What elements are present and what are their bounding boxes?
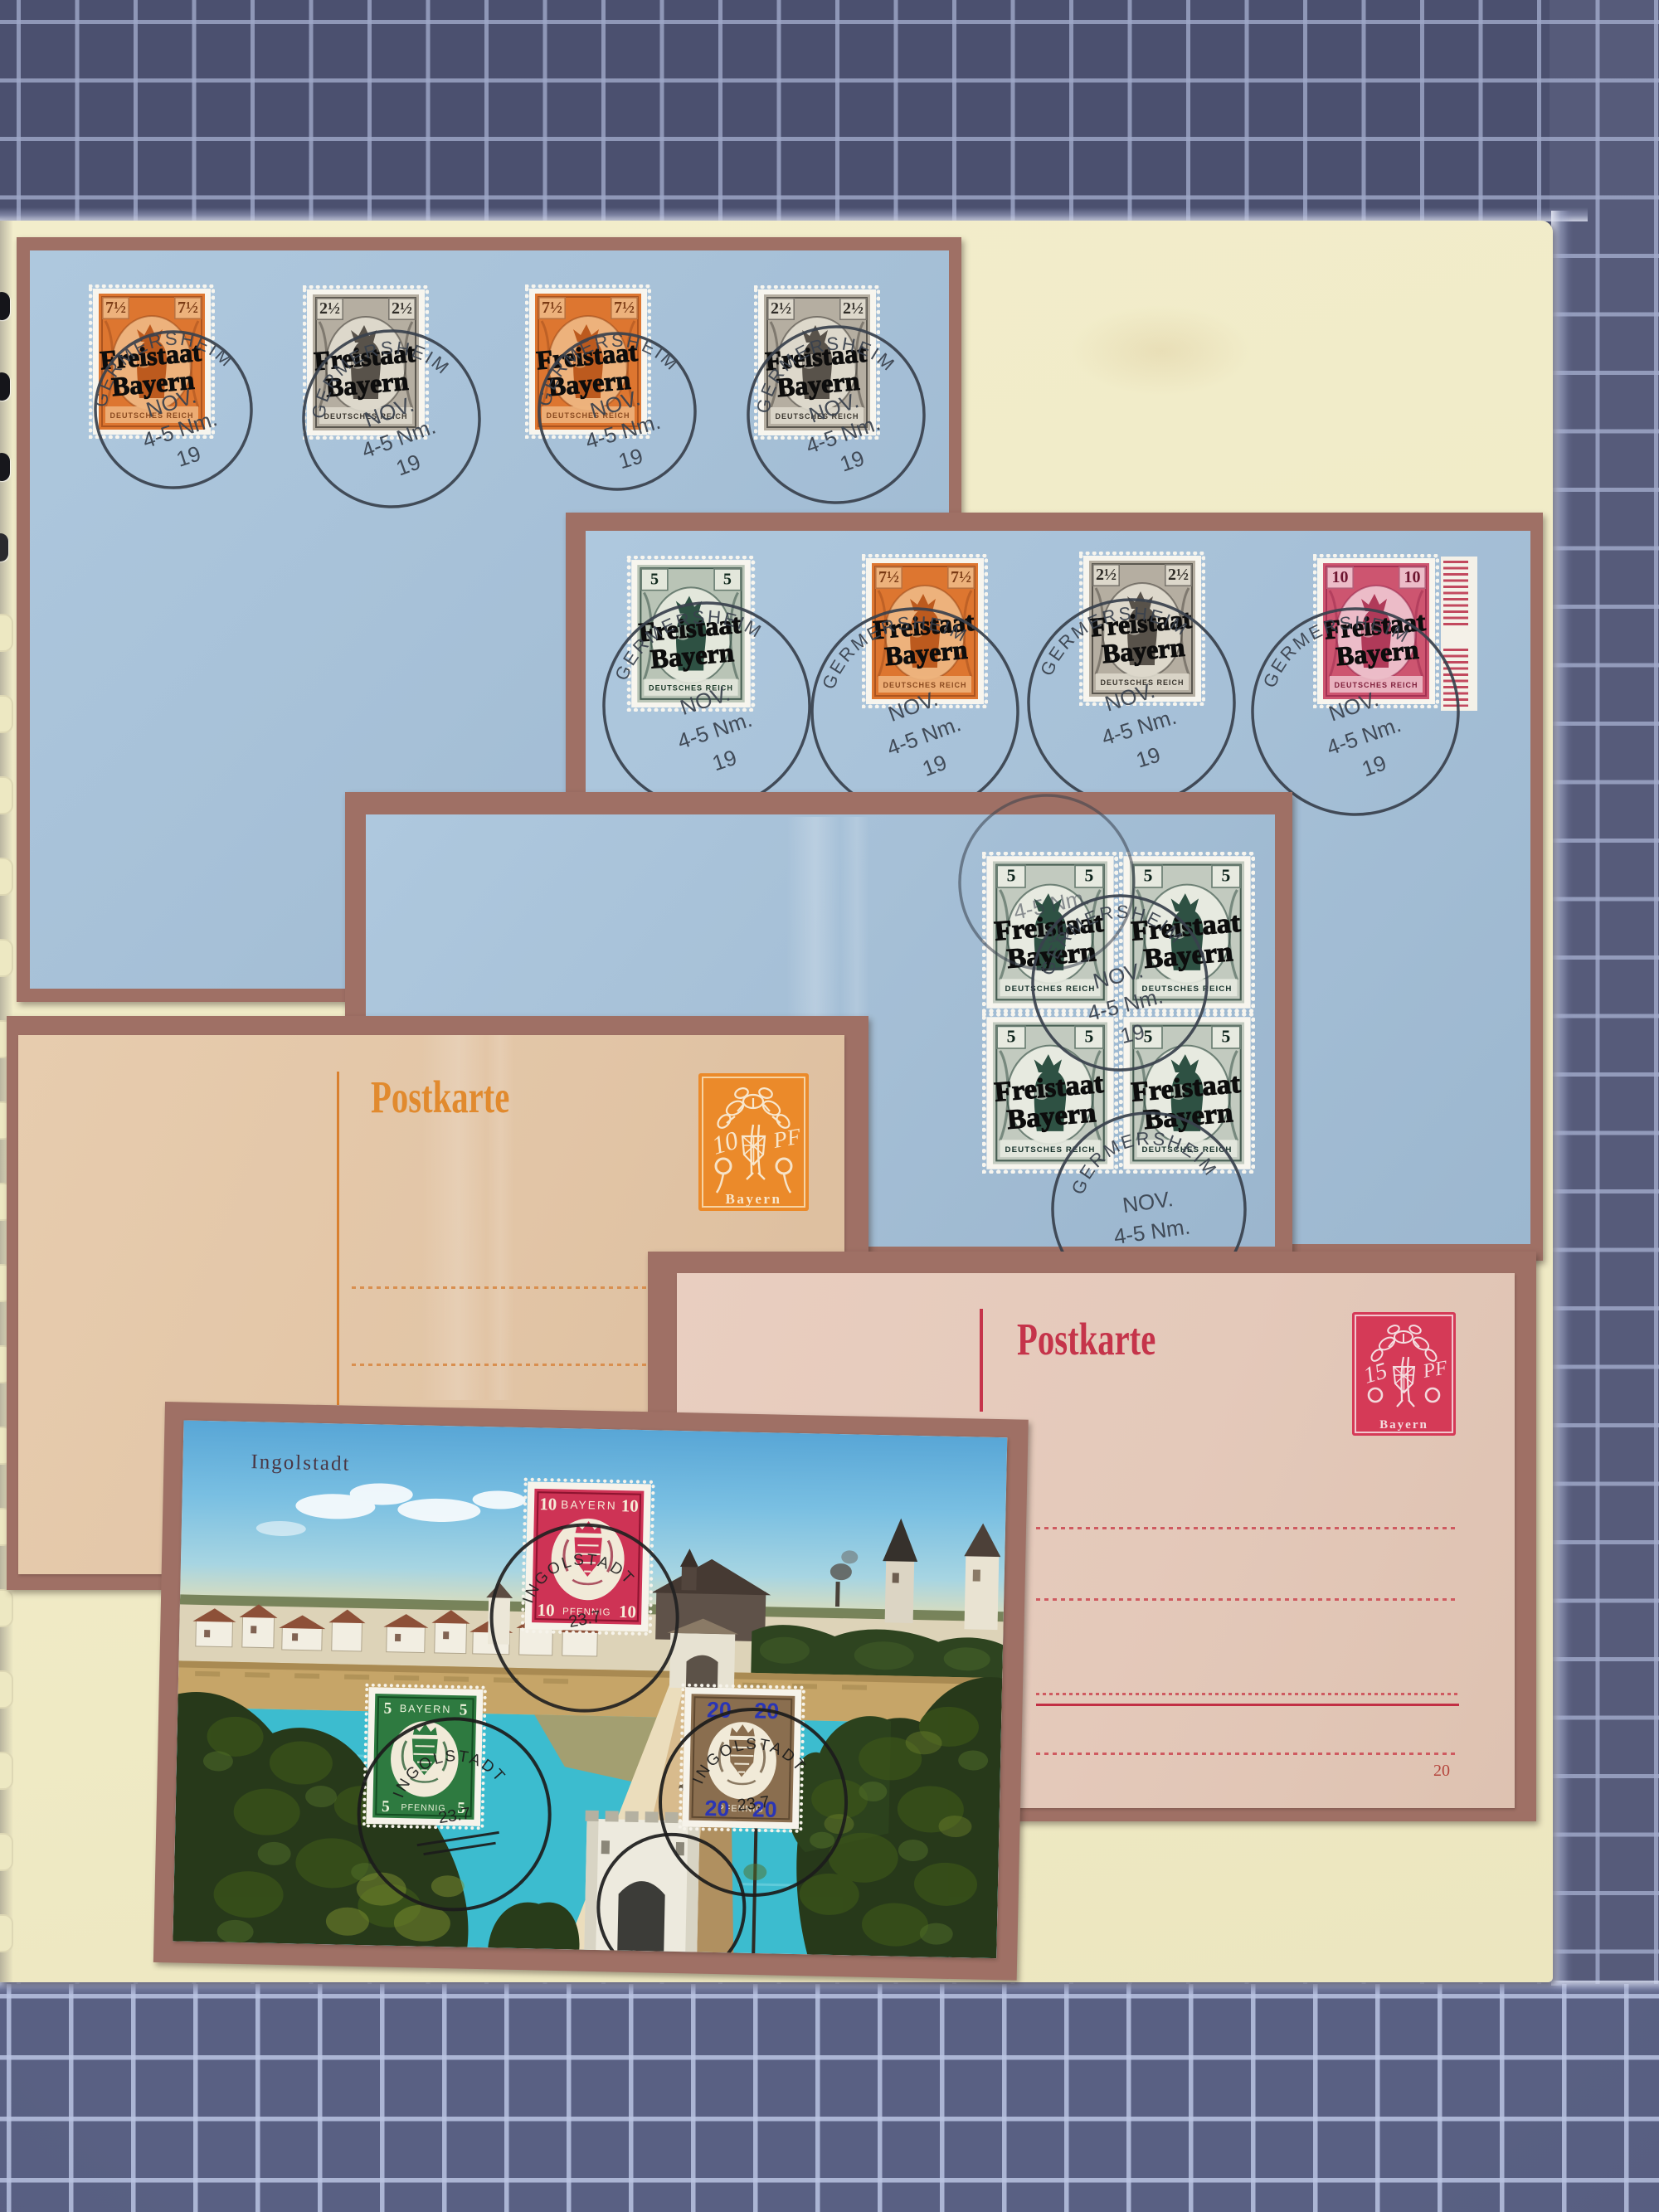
svg-text:5: 5: [382, 1798, 390, 1816]
svg-text:Bayern: Bayern: [726, 1191, 782, 1207]
svg-text:2½: 2½: [771, 299, 791, 318]
svg-text:10: 10: [1332, 568, 1349, 586]
svg-text:2½: 2½: [1168, 566, 1189, 584]
svg-text:7½: 7½: [178, 299, 198, 317]
svg-text:7½: 7½: [878, 568, 899, 586]
svg-text:2½: 2½: [319, 299, 340, 318]
svg-text:5: 5: [383, 1700, 392, 1718]
svg-text:19: 19: [1133, 741, 1163, 772]
svg-text:7½: 7½: [542, 299, 562, 317]
svg-text:Bayern: Bayern: [1379, 1418, 1428, 1432]
svg-text:BAYERN: BAYERN: [561, 1499, 617, 1512]
svg-text:2½: 2½: [1096, 566, 1117, 584]
svg-text:GERMERSHEIM: GERMERSHEIM: [1060, 1118, 1223, 1200]
svg-text:5: 5: [1144, 866, 1153, 886]
svg-text:20: 20: [704, 1796, 729, 1821]
svg-text:5: 5: [460, 1701, 468, 1719]
svg-text:PF: PF: [771, 1124, 803, 1154]
svg-text:7½: 7½: [105, 299, 126, 317]
svg-text:19: 19: [173, 440, 204, 471]
svg-text:7½: 7½: [951, 568, 971, 586]
svg-text:19: 19: [392, 449, 423, 480]
svg-text:10: 10: [537, 1600, 554, 1620]
svg-text:10: 10: [619, 1602, 636, 1621]
svg-text:10: 10: [621, 1495, 639, 1515]
svg-text:NOV.: NOV.: [1121, 1186, 1175, 1218]
svg-text:19: 19: [919, 750, 950, 781]
svg-text:10: 10: [539, 1494, 557, 1514]
svg-text:19: 19: [1359, 750, 1389, 781]
svg-text:5: 5: [1222, 866, 1231, 886]
svg-text:Ingolstadt: Ingolstadt: [251, 1451, 351, 1475]
svg-text:5: 5: [723, 570, 732, 588]
svg-text:5: 5: [1007, 1027, 1016, 1047]
svg-text:19: 19: [837, 445, 868, 477]
svg-text:19: 19: [709, 745, 740, 775]
svg-text:5: 5: [1222, 1027, 1231, 1047]
svg-text:2½: 2½: [843, 299, 864, 318]
svg-text:19: 19: [1118, 1018, 1147, 1048]
svg-text:7½: 7½: [614, 299, 635, 317]
svg-text:BAYERN: BAYERN: [400, 1703, 452, 1715]
svg-text:23.7: 23.7: [737, 1793, 771, 1815]
svg-text:5: 5: [650, 570, 659, 588]
svg-text:4-5 Nm.: 4-5 Nm.: [1112, 1213, 1192, 1249]
svg-text:10: 10: [1404, 568, 1421, 586]
svg-text:PF: PF: [1421, 1357, 1450, 1383]
svg-text:2½: 2½: [392, 299, 412, 318]
svg-text:19: 19: [615, 443, 645, 474]
